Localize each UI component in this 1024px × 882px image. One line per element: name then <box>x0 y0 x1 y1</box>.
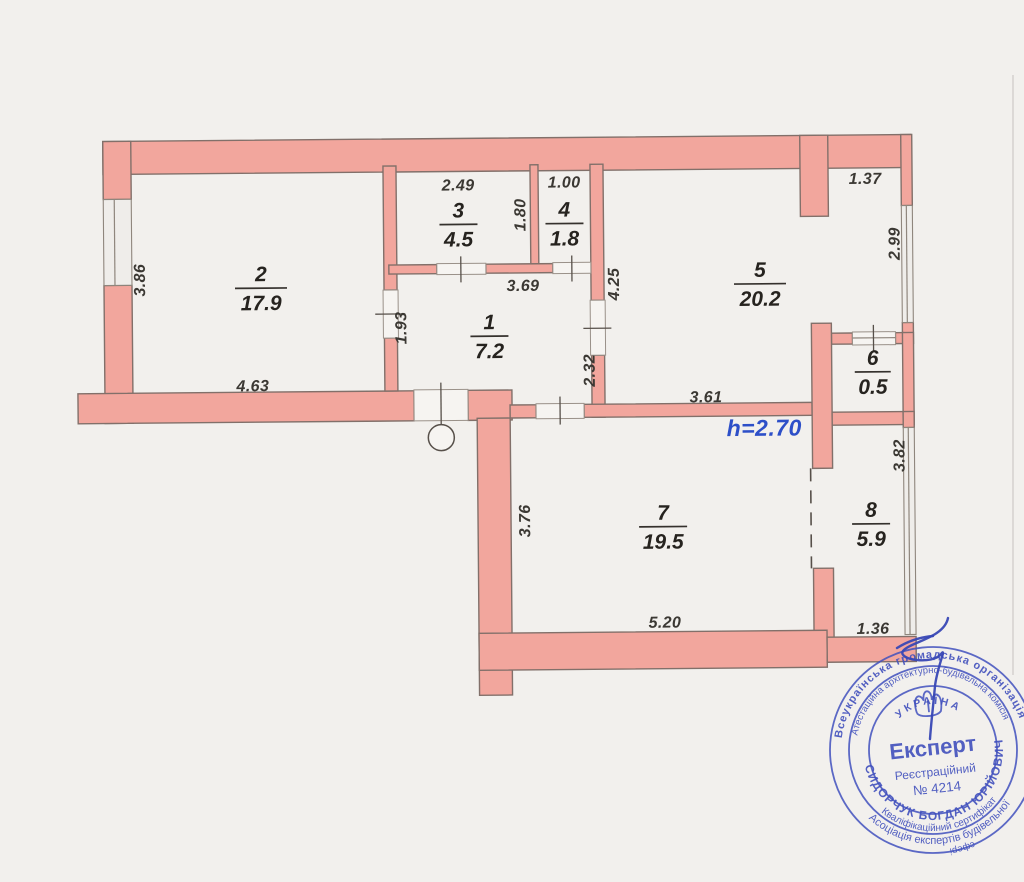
stamp-reg-label: Реєстраційний <box>894 761 976 783</box>
room-label-3: 3 4.5 <box>439 199 477 251</box>
dim-top-right: 1.37 <box>849 171 883 188</box>
window-room2-glass-line <box>114 199 115 285</box>
dim-room7-height: 3.76 <box>517 504 534 537</box>
window-room2 <box>103 199 132 285</box>
dim-hall-width: 3.69 <box>507 278 540 295</box>
stamp-reg-number: № 4214 <box>912 778 962 798</box>
dim-hall-lower: 2.32 <box>582 354 599 388</box>
svg-text:7: 7 <box>657 502 670 525</box>
wall-room6-room8 <box>832 412 903 426</box>
wall-room6-right <box>902 332 914 424</box>
svg-text:6: 6 <box>867 347 879 370</box>
wall-room6-top-left <box>831 333 852 344</box>
dim-top-room4: 1.00 <box>548 174 581 191</box>
doorbell-circle <box>428 424 454 450</box>
ceiling-height-note: h=2.70 <box>727 414 802 441</box>
svg-text:4: 4 <box>557 198 570 221</box>
wall-left-upper <box>103 141 132 199</box>
wall-room3-sill-right <box>486 264 553 274</box>
dim-room5-width: 3.61 <box>690 389 723 406</box>
expert-stamp: Всеукраїнська громадська організація Ате… <box>820 637 1024 868</box>
room-label-2: 2 17.9 <box>235 263 287 315</box>
wall-hall-room5-upper <box>590 164 604 300</box>
wall-room7-top-left <box>510 405 536 418</box>
room-labels: 1 7.2 2 17.9 3 4.5 4 1.8 5 <box>234 196 892 558</box>
wall-room3-room4 <box>530 165 539 265</box>
wall-room5-stub <box>800 135 829 216</box>
dim-room5-height: 4.25 <box>606 267 623 302</box>
room-label-7: 7 19.5 <box>639 501 687 553</box>
svg-text:19.5: 19.5 <box>643 530 684 553</box>
wall-room2-hall-lower <box>384 338 397 391</box>
dim-room2-width: 4.63 <box>235 378 269 395</box>
svg-text:4.5: 4.5 <box>443 228 474 251</box>
dim-room5-window: 2.99 <box>887 227 904 261</box>
wall-top <box>103 134 911 174</box>
dim-room2-door: 1.93 <box>393 311 410 344</box>
svg-text:8: 8 <box>865 499 877 522</box>
svg-text:0.5: 0.5 <box>858 376 888 399</box>
svg-text:1.8: 1.8 <box>550 227 580 250</box>
floor-plan-drawing: 1 7.2 2 17.9 3 4.5 4 1.8 5 <box>0 0 1024 882</box>
svg-text:1: 1 <box>483 311 495 334</box>
svg-text:17.9: 17.9 <box>241 292 282 315</box>
partition-dashed-line-room7-room8 <box>811 468 812 568</box>
apartment-plan: 1 7.2 2 17.9 3 4.5 4 1.8 5 <box>76 134 917 698</box>
stamp-title: Експерт <box>888 731 977 765</box>
dim-top-room3: 2.49 <box>441 177 475 194</box>
room-label-1: 1 7.2 <box>470 311 508 363</box>
wall-right-top <box>901 134 913 205</box>
svg-text:5: 5 <box>754 259 766 282</box>
wall-room6-left <box>811 323 832 468</box>
wall-room3-sill-left <box>389 265 437 274</box>
room-label-5: 5 20.2 <box>734 259 786 311</box>
wall-bottom-entry-right <box>468 390 512 420</box>
room-label-4: 4 1.8 <box>545 198 583 250</box>
dim-room7-width: 5.20 <box>649 615 682 632</box>
dim-room8-bottom: 1.36 <box>857 621 890 638</box>
svg-text:20.2: 20.2 <box>739 288 781 311</box>
dim-room2-left: 3.86 <box>132 264 149 297</box>
wall-bottom-left <box>78 391 414 424</box>
scanned-floor-plan-page: 1 7.2 2 17.9 3 4.5 4 1.8 5 <box>0 0 1024 882</box>
dim-room3-height: 1.80 <box>512 198 529 231</box>
dim-room8-window: 3.82 <box>891 439 908 472</box>
room-label-8: 8 5.9 <box>852 499 890 551</box>
wall-room8-right-top <box>903 411 914 427</box>
svg-text:7.2: 7.2 <box>475 340 505 363</box>
svg-text:5.9: 5.9 <box>857 528 887 551</box>
room-label-6: 6 0.5 <box>855 347 891 399</box>
svg-text:2: 2 <box>254 263 267 286</box>
wall-room7-bottom <box>479 630 827 670</box>
svg-text:3: 3 <box>452 199 464 222</box>
